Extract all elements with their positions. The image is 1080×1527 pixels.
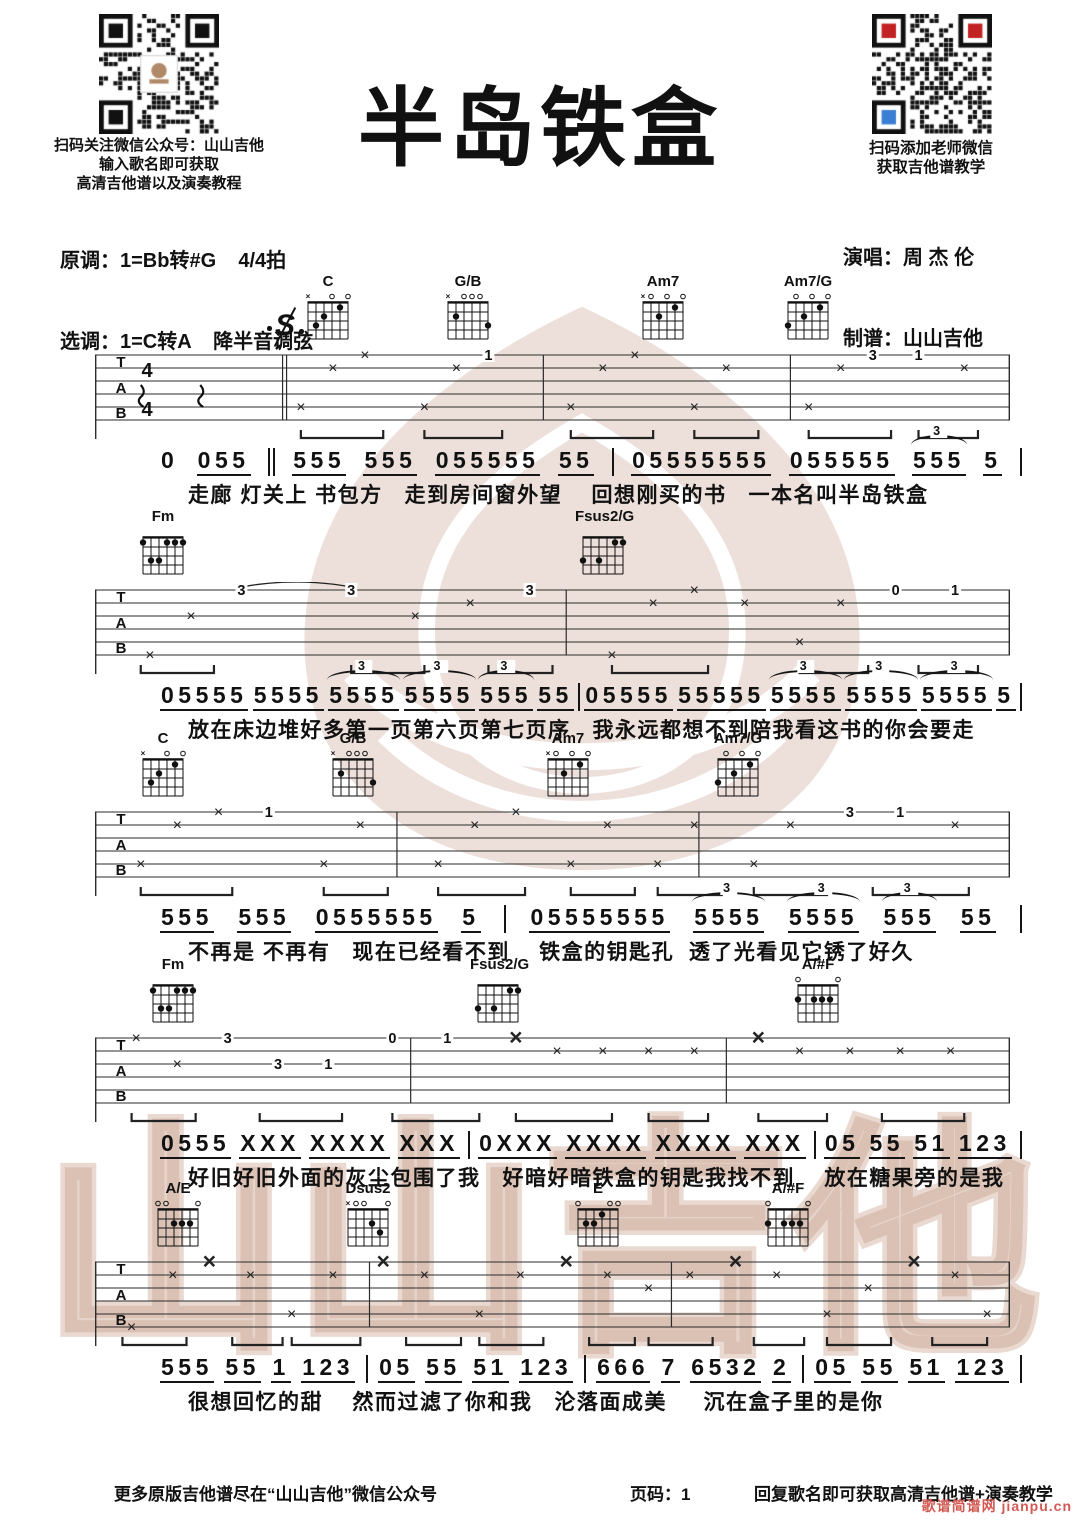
svg-text:B: B bbox=[116, 862, 127, 879]
note-group: 666 bbox=[596, 1354, 650, 1383]
triplet-number: 3 bbox=[901, 882, 918, 895]
svg-text:0: 0 bbox=[388, 1031, 396, 1047]
tab-staff: TAB××33101×××××××××× bbox=[95, 1030, 1010, 1126]
chord-diagram-GB: G/B× bbox=[440, 275, 496, 347]
svg-text:T: T bbox=[116, 354, 125, 371]
chord-diagram-Fsus2G: Fsus2/G bbox=[470, 958, 526, 1030]
note-group: 35555 bbox=[328, 682, 399, 711]
svg-text:×: × bbox=[804, 399, 813, 416]
note-group: 055555 bbox=[789, 447, 895, 476]
chord-name: Am7/G bbox=[780, 275, 836, 290]
svg-text:×: × bbox=[752, 1030, 765, 1050]
svg-text:×: × bbox=[864, 1280, 873, 1297]
chord-row: FmFsus2/GA/#F bbox=[60, 966, 1020, 1030]
svg-text:1: 1 bbox=[265, 805, 273, 821]
svg-text:B: B bbox=[116, 640, 127, 657]
chord-diagram-C: C× bbox=[135, 732, 191, 804]
barline bbox=[1020, 683, 1022, 711]
svg-text:×: × bbox=[907, 1254, 920, 1274]
note-group: 555 bbox=[363, 447, 417, 476]
triplet-number: 3 bbox=[815, 882, 832, 895]
chord-diagram-Am7: Am7× bbox=[635, 275, 691, 347]
svg-text:×: × bbox=[690, 1043, 699, 1060]
svg-text:3: 3 bbox=[869, 348, 877, 364]
note-group: 35555 bbox=[845, 682, 916, 711]
note-group: 5 bbox=[461, 904, 480, 933]
note-group: 05 bbox=[814, 1354, 851, 1383]
note-group: 35555 bbox=[770, 682, 841, 711]
svg-text:×: × bbox=[319, 856, 328, 873]
chord-grid bbox=[576, 525, 630, 577]
note-group: 55 bbox=[960, 904, 997, 933]
chord-grid: × bbox=[326, 747, 380, 799]
chord-diagram-Am7: Am7× bbox=[540, 732, 596, 804]
chord-grid: × bbox=[301, 290, 355, 342]
svg-text:B: B bbox=[116, 1088, 127, 1105]
svg-text:×: × bbox=[795, 1043, 804, 1060]
svg-text:×: × bbox=[296, 399, 305, 416]
svg-text:×: × bbox=[946, 1043, 955, 1060]
svg-text:×: × bbox=[287, 1306, 296, 1323]
barline bbox=[584, 1355, 586, 1383]
svg-text:×: × bbox=[960, 360, 969, 377]
svg-text:×: × bbox=[377, 1254, 390, 1274]
note-group: 35555 bbox=[693, 904, 764, 933]
svg-text:×: × bbox=[836, 595, 845, 612]
note-group: 1 bbox=[271, 1354, 290, 1383]
triplet-number: 3 bbox=[948, 660, 965, 673]
svg-text:×: × bbox=[186, 608, 195, 625]
footer-left: 更多原版吉他谱尽在“山山吉他”微信公众号 bbox=[114, 1480, 437, 1505]
right-qr-caption: 扫码添加老师微信 获取吉他谱教学 bbox=[816, 139, 1046, 177]
svg-text:×: × bbox=[411, 608, 420, 625]
note-group: 123 bbox=[958, 1130, 1012, 1159]
svg-text:×: × bbox=[136, 856, 145, 873]
chord-name: C bbox=[300, 275, 356, 290]
svg-text:×: × bbox=[644, 1280, 653, 1297]
note-group: XXXX bbox=[309, 1130, 390, 1159]
note-group: 05 bbox=[378, 1354, 415, 1383]
note-group: 05555555 bbox=[631, 447, 771, 476]
svg-text:×: × bbox=[653, 856, 662, 873]
tab-staff: TAB44×××××1×××××××31× bbox=[95, 347, 1010, 443]
svg-text:×: × bbox=[328, 1267, 337, 1284]
svg-text:1: 1 bbox=[914, 348, 922, 364]
chord-row: FmFsus2/G bbox=[60, 518, 1020, 582]
footer-page-number: 页码：1 bbox=[630, 1480, 690, 1505]
note-group: 05555 bbox=[584, 682, 672, 711]
svg-text:A: A bbox=[116, 1287, 127, 1304]
note-group: 55 bbox=[537, 682, 574, 711]
svg-text:×: × bbox=[306, 292, 311, 301]
chord-grid: × bbox=[441, 290, 495, 342]
svg-text:×: × bbox=[127, 1319, 136, 1336]
barline bbox=[268, 448, 275, 476]
note-group: 55 bbox=[558, 447, 595, 476]
note-group: XXX bbox=[744, 1130, 806, 1159]
note-group: 51 bbox=[908, 1354, 945, 1383]
svg-text:×: × bbox=[470, 817, 479, 834]
svg-text:3: 3 bbox=[274, 1057, 282, 1073]
note-group: 55555 bbox=[677, 682, 765, 711]
note-group: XXXX bbox=[655, 1130, 736, 1159]
svg-text:×: × bbox=[982, 1306, 991, 1323]
note-group: 0555 bbox=[160, 1130, 231, 1159]
chord-grid bbox=[471, 973, 525, 1025]
chord-diagram-AE: A/E bbox=[150, 1182, 206, 1254]
svg-text:×: × bbox=[465, 595, 474, 612]
svg-text:×: × bbox=[598, 1043, 607, 1060]
svg-text:×: × bbox=[950, 817, 959, 834]
svg-text:×: × bbox=[845, 1043, 854, 1060]
chord-grid bbox=[571, 1197, 625, 1249]
triplet-number: 3 bbox=[497, 660, 514, 673]
note-group: 5 bbox=[996, 682, 1015, 711]
note-group: 0555555 bbox=[315, 904, 438, 933]
lyrics-line: 走廊 灯关上 书包方 走到房间窗外望 回想刚买的书 一本名叫半岛铁盒 bbox=[188, 479, 929, 509]
triplet-number: 3 bbox=[872, 660, 889, 673]
svg-text:×: × bbox=[740, 595, 749, 612]
chord-diagram-C: C× bbox=[300, 275, 356, 347]
note-group: 055 bbox=[197, 447, 251, 476]
svg-text:3: 3 bbox=[526, 583, 534, 599]
svg-text:4: 4 bbox=[141, 360, 153, 382]
chord-row: SC×G/B×Am7×Am7/G bbox=[60, 283, 1020, 347]
svg-text:A: A bbox=[116, 615, 127, 632]
chord-name: Fsus2/G bbox=[470, 958, 526, 973]
svg-text:×: × bbox=[722, 360, 731, 377]
svg-text:×: × bbox=[950, 1267, 959, 1284]
triplet-number: 3 bbox=[431, 660, 448, 673]
note-group: 05 bbox=[824, 1130, 861, 1159]
note-group: 55 bbox=[861, 1354, 898, 1383]
note-group: XXXX bbox=[565, 1130, 646, 1159]
chord-name: Fm bbox=[145, 958, 201, 973]
svg-text:×: × bbox=[546, 749, 551, 758]
barline bbox=[1020, 1131, 1022, 1159]
note-group: 3555 bbox=[479, 682, 533, 711]
svg-text:×: × bbox=[644, 1043, 653, 1060]
chord-diagram-Am7G: Am7/G bbox=[710, 732, 766, 804]
chord-grid bbox=[781, 290, 835, 342]
barline bbox=[468, 1131, 470, 1159]
svg-text:×: × bbox=[598, 360, 607, 377]
note-group: 35555 bbox=[788, 904, 859, 933]
barline bbox=[1020, 1355, 1022, 1383]
svg-text:×: × bbox=[729, 1254, 742, 1274]
svg-text:×: × bbox=[749, 856, 758, 873]
barline bbox=[612, 448, 614, 476]
svg-text:B: B bbox=[116, 405, 127, 422]
note-group: 55 bbox=[869, 1130, 906, 1159]
svg-text:×: × bbox=[141, 749, 146, 758]
melody-line: 0555XXXXXXXXXX0XXXXXXXXXXXXXX055551123 bbox=[160, 1130, 1022, 1159]
svg-text:1: 1 bbox=[324, 1057, 332, 1073]
svg-text:×: × bbox=[346, 1199, 351, 1208]
svg-text:×: × bbox=[786, 817, 795, 834]
chord-name: G/B bbox=[325, 732, 381, 747]
chord-diagram-Am7G: Am7/G bbox=[780, 275, 836, 347]
note-group: 5555 bbox=[253, 682, 324, 711]
svg-text:×: × bbox=[331, 749, 336, 758]
note-group: 123 bbox=[519, 1354, 573, 1383]
chord-name: Dsus2 bbox=[340, 1182, 396, 1197]
system-3: C×G/B×Am7×Am7/GTAB×××1×××××××××××31×5555… bbox=[60, 740, 1020, 972]
note-group: 555 bbox=[160, 904, 214, 933]
svg-text:×: × bbox=[560, 1254, 573, 1274]
chord-name: Fm bbox=[135, 510, 191, 525]
svg-text:×: × bbox=[446, 292, 451, 301]
chord-name: A/#F bbox=[790, 958, 846, 973]
note-group: 555 bbox=[160, 1354, 214, 1383]
right-qr-caption-line1: 扫码添加老师微信 bbox=[816, 139, 1046, 158]
svg-text:×: × bbox=[509, 1030, 522, 1050]
svg-text:×: × bbox=[214, 804, 223, 821]
svg-text:×: × bbox=[690, 582, 699, 599]
note-group: 0 bbox=[160, 447, 179, 474]
system-1: SC×G/B×Am7×Am7/GTAB44×××××1×××××××31×005… bbox=[60, 283, 1020, 515]
barline bbox=[366, 1355, 368, 1383]
barline bbox=[504, 905, 506, 933]
note-group: 55 bbox=[224, 1354, 261, 1383]
note-group: 05555 bbox=[160, 682, 248, 711]
svg-text:×: × bbox=[420, 1267, 429, 1284]
chord-grid bbox=[711, 747, 765, 799]
singer: 演唱：周 杰 伦 bbox=[843, 245, 983, 272]
svg-text:1: 1 bbox=[896, 805, 904, 821]
chord-grid: × bbox=[136, 747, 190, 799]
barline bbox=[802, 1355, 804, 1383]
chord-diagram-E: E bbox=[570, 1182, 626, 1254]
triplet-number: 3 bbox=[797, 660, 814, 673]
note-group: XXX bbox=[239, 1130, 301, 1159]
lyrics-line: 很想回忆的甜 然而过滤了你和我 沦落面成美 沉在盒子里的是你 bbox=[188, 1386, 884, 1416]
tab-staff: TAB××××××××××××××××××××× bbox=[95, 1254, 1010, 1350]
note-group: 55 bbox=[425, 1354, 462, 1383]
right-qr-caption-line2: 获取吉他谱教学 bbox=[816, 158, 1046, 177]
triplet-number: 3 bbox=[930, 425, 947, 438]
note-group: 35555 bbox=[404, 682, 475, 711]
chord-name: Fsus2/G bbox=[575, 510, 631, 525]
svg-text:3: 3 bbox=[347, 583, 355, 599]
svg-text:×: × bbox=[173, 1056, 182, 1073]
chord-grid: × bbox=[341, 1197, 395, 1249]
svg-text:3: 3 bbox=[237, 583, 245, 599]
svg-text:0: 0 bbox=[892, 583, 900, 599]
svg-text:×: × bbox=[566, 856, 575, 873]
svg-text:×: × bbox=[132, 1030, 141, 1047]
note-group: 51 bbox=[472, 1354, 509, 1383]
barline bbox=[814, 1131, 816, 1159]
note-group: 3555 bbox=[912, 447, 966, 476]
svg-text:×: × bbox=[690, 399, 699, 416]
chord-diagram-AF: A/#F bbox=[790, 958, 846, 1030]
chord-grid bbox=[761, 1197, 815, 1249]
svg-text:1: 1 bbox=[951, 583, 959, 599]
svg-text:×: × bbox=[641, 292, 646, 301]
melody-line: 555551123055551123666765322055551123 bbox=[160, 1354, 1022, 1383]
melody-line: 0055555555055555550555555505555535555 bbox=[160, 447, 1022, 476]
svg-text:A: A bbox=[116, 380, 127, 397]
svg-text:×: × bbox=[173, 817, 182, 834]
svg-text:×: × bbox=[648, 595, 657, 612]
chord-grid bbox=[151, 1197, 205, 1249]
note-group: 123 bbox=[955, 1354, 1009, 1383]
svg-text:×: × bbox=[630, 347, 639, 364]
segno-sign: S bbox=[272, 311, 298, 341]
triplet-number: 3 bbox=[720, 882, 737, 895]
svg-text:B: B bbox=[116, 1312, 127, 1329]
chord-row: C×G/B×Am7×Am7/G bbox=[60, 740, 1020, 804]
svg-text:×: × bbox=[795, 634, 804, 651]
note-group: XXX bbox=[398, 1130, 460, 1159]
svg-text:×: × bbox=[360, 347, 369, 364]
chord-row: A/EDsus2×EA/#F bbox=[60, 1190, 1020, 1254]
barline bbox=[1020, 905, 1022, 933]
note-group: 51 bbox=[913, 1130, 950, 1159]
svg-text:×: × bbox=[836, 360, 845, 377]
chord-name: A/E bbox=[150, 1182, 206, 1197]
svg-text:×: × bbox=[433, 856, 442, 873]
tab-staff: TAB×××1×××××××××××31× bbox=[95, 804, 1010, 900]
note-group: 05555555 bbox=[529, 904, 669, 933]
svg-text:×: × bbox=[685, 1267, 694, 1284]
svg-text:×: × bbox=[772, 1267, 781, 1284]
original-key: 原调：1=Bb转#G 4/4拍 bbox=[60, 248, 313, 275]
chord-diagram-Fm: Fm bbox=[145, 958, 201, 1030]
svg-text:×: × bbox=[452, 360, 461, 377]
chord-grid bbox=[146, 973, 200, 1025]
system-5: A/EDsus2×EA/#FTAB×××××××××××××××××××××55… bbox=[60, 1190, 1020, 1422]
svg-text:T: T bbox=[116, 589, 125, 606]
svg-text:T: T bbox=[116, 1261, 125, 1278]
chord-grid: × bbox=[541, 747, 595, 799]
barline bbox=[1020, 448, 1022, 476]
svg-text:3: 3 bbox=[846, 805, 854, 821]
melody-line: 0555555553555535555355555055555555535555… bbox=[160, 682, 1022, 711]
triplet-number: 3 bbox=[355, 660, 372, 673]
chord-grid bbox=[136, 525, 190, 577]
note-group: 6532 bbox=[690, 1354, 761, 1383]
note-group: 3555 bbox=[883, 904, 937, 933]
svg-text:1: 1 bbox=[484, 348, 492, 364]
barline bbox=[578, 683, 580, 711]
svg-text:1: 1 bbox=[443, 1031, 451, 1047]
svg-text:×: × bbox=[420, 399, 429, 416]
note-group: 7 bbox=[661, 1354, 680, 1383]
chord-name: C bbox=[135, 732, 191, 747]
svg-text:×: × bbox=[168, 1267, 177, 1284]
chord-diagram-GB: G/B× bbox=[325, 732, 381, 804]
chord-diagram-Dsus2: Dsus2× bbox=[340, 1182, 396, 1254]
svg-text:×: × bbox=[896, 1043, 905, 1060]
svg-text:×: × bbox=[516, 1267, 525, 1284]
chord-name: Am7 bbox=[540, 732, 596, 747]
system-4: FmFsus2/GA/#FTAB××33101××××××××××0555XXX… bbox=[60, 966, 1020, 1198]
svg-text:×: × bbox=[246, 1267, 255, 1284]
svg-text:T: T bbox=[116, 1037, 125, 1054]
chord-name: Am7/G bbox=[710, 732, 766, 747]
svg-text:T: T bbox=[116, 811, 125, 828]
chord-name: A/#F bbox=[760, 1182, 816, 1197]
sheet-page: 山山吉他 扫码关注微信公众号：山山吉他 输入歌名即可获取 高清吉他谱以及演奏教程… bbox=[0, 0, 1080, 1527]
svg-text:×: × bbox=[328, 360, 337, 377]
system-2: FmFsus2/GTAB××33××3××××××010555555553555… bbox=[60, 518, 1020, 750]
svg-text:A: A bbox=[116, 837, 127, 854]
svg-text:×: × bbox=[552, 1043, 561, 1060]
svg-text:×: × bbox=[145, 647, 154, 664]
chord-grid bbox=[791, 973, 845, 1025]
chord-diagram-Fsus2G: Fsus2/G bbox=[575, 510, 631, 582]
svg-text:×: × bbox=[607, 647, 616, 664]
svg-text:×: × bbox=[356, 817, 365, 834]
chord-name: E bbox=[570, 1182, 626, 1197]
svg-text:4: 4 bbox=[141, 399, 153, 421]
svg-text:×: × bbox=[603, 1267, 612, 1284]
chord-grid: × bbox=[636, 290, 690, 342]
svg-text:×: × bbox=[566, 399, 575, 416]
chord-name: G/B bbox=[440, 275, 496, 290]
svg-text:×: × bbox=[690, 817, 699, 834]
note-group: 055555 bbox=[435, 447, 541, 476]
site-watermark: 歌谱简谱网 jianpu.cn bbox=[922, 1496, 1072, 1516]
svg-text:×: × bbox=[603, 817, 612, 834]
chord-diagram-Fm: Fm bbox=[135, 510, 191, 582]
svg-text:×: × bbox=[822, 1306, 831, 1323]
note-group: 555 bbox=[292, 447, 346, 476]
note-group: 123 bbox=[301, 1354, 355, 1383]
note-group: 2 bbox=[772, 1354, 791, 1383]
svg-text:3: 3 bbox=[224, 1031, 232, 1047]
note-group: 5 bbox=[983, 447, 1002, 476]
svg-text:×: × bbox=[203, 1254, 216, 1274]
note-group: 0XXX bbox=[478, 1130, 557, 1159]
svg-text:×: × bbox=[475, 1306, 484, 1323]
note-group: 35555 bbox=[921, 682, 992, 711]
chord-diagram-AF: A/#F bbox=[760, 1182, 816, 1254]
chord-name: Am7 bbox=[635, 275, 691, 290]
svg-text:×: × bbox=[511, 804, 520, 821]
note-group: 555 bbox=[237, 904, 291, 933]
svg-text:A: A bbox=[116, 1063, 127, 1080]
melody-line: 55555505555555055555553555535555355555 bbox=[160, 904, 1022, 933]
